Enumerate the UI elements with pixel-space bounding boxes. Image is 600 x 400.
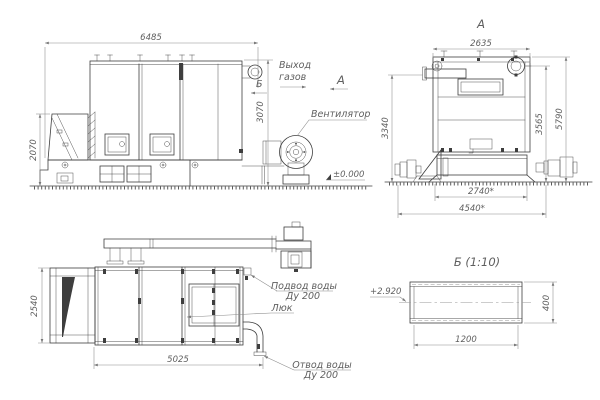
side-view: 6485 3070 2070 Выход газов А Б [29, 33, 372, 188]
boiler-body-plan [95, 267, 243, 345]
dim-side-length: 6485 [45, 33, 258, 158]
dim-2740: 2740* [468, 187, 494, 197]
duct-section [399, 282, 531, 323]
drawing-sheet: 6485 3070 2070 Выход газов А Б [0, 0, 600, 400]
gas-outlet-label: Выход газов [279, 60, 311, 87]
fan-label: Вентилятор [297, 109, 370, 136]
eyebolt-icons-front [441, 51, 517, 57]
water-outlet-text-2: Ду 200 [303, 370, 338, 381]
dim-1200: 1200 [455, 335, 477, 345]
dim-400: 400 [542, 295, 552, 311]
ground-line-front [385, 182, 592, 184]
dim-plan-width: 2540 [30, 268, 50, 343]
ground-line [30, 186, 372, 188]
dim-3070: 3070 [256, 101, 266, 123]
feed-table-plan [50, 268, 95, 343]
boiler-body-front [423, 51, 532, 153]
dim-5790: 5790 [555, 108, 565, 130]
dim-2635: 2635 [470, 39, 492, 49]
dim-3340: 3340 [381, 117, 391, 139]
fuel-hopper [48, 112, 95, 160]
chute-opening [62, 277, 75, 337]
ground-level-icon [326, 174, 331, 180]
dim-4540: 4540* [459, 204, 485, 214]
dim-2070: 2070 [29, 139, 39, 161]
eyebolt-icons [95, 55, 195, 61]
view-a-marker-text: А [336, 73, 345, 87]
hatch-plan [189, 284, 239, 326]
hatch-label: Люк [187, 303, 294, 317]
gas-outlet-flange [242, 65, 262, 79]
section-b-title: Б (1:10) [454, 255, 500, 269]
ground-level-mark: ±0.000 [326, 170, 365, 180]
front-view-title: А [476, 17, 485, 31]
water-supply: Подвод воды Ду 200 [244, 268, 337, 302]
fan-side [263, 136, 313, 185]
ground-level-text: ±0.000 [333, 170, 364, 180]
hatch-label-text: Люк [271, 303, 293, 314]
dim-front-mid-height: 3565 [524, 66, 550, 182]
base-frame [40, 160, 284, 186]
gas-outlet-text-2: газов [279, 72, 307, 83]
dim-3565: 3565 [535, 113, 545, 135]
section-b-view: Б (1:10) +2.920 400 1200 [370, 255, 557, 349]
fan-plan [276, 222, 311, 272]
gas-outlet-text-1: Выход [279, 60, 311, 71]
water-outlet: Отвод воды Ду 200 [243, 322, 352, 381]
dim-section-length: 1200 [414, 325, 518, 349]
dim-plan-length: 5025 [94, 347, 263, 369]
dim-front-base-width: 2740* [435, 184, 527, 201]
duct-plan [104, 236, 276, 264]
dim-hopper-height: 2070 [29, 114, 50, 186]
fan-label-text: Вентилятор [311, 109, 370, 120]
water-supply-text-2: Ду 200 [285, 291, 320, 302]
dim-5025: 5025 [167, 355, 189, 365]
screw-feeder-right [536, 157, 577, 177]
elevation-text: +2.920 [370, 287, 401, 297]
inspection-doors [105, 134, 174, 155]
section-b-marker: Б [251, 79, 267, 93]
boiler-technical-drawing: 6485 3070 2070 Выход газов А Б [0, 0, 600, 400]
boiler-body [90, 55, 243, 160]
dim-2540: 2540 [30, 295, 40, 317]
view-a-marker: А [330, 73, 348, 89]
section-b-marker-text: Б [256, 79, 263, 90]
elevation-mark: +2.920 [370, 287, 406, 302]
plan-view: Подвод воды Ду 200 Люк Отвод воды Ду 200… [30, 222, 352, 381]
base-frame-front [429, 155, 535, 182]
front-view-a: А [381, 17, 592, 218]
dim-6485: 6485 [140, 33, 162, 43]
